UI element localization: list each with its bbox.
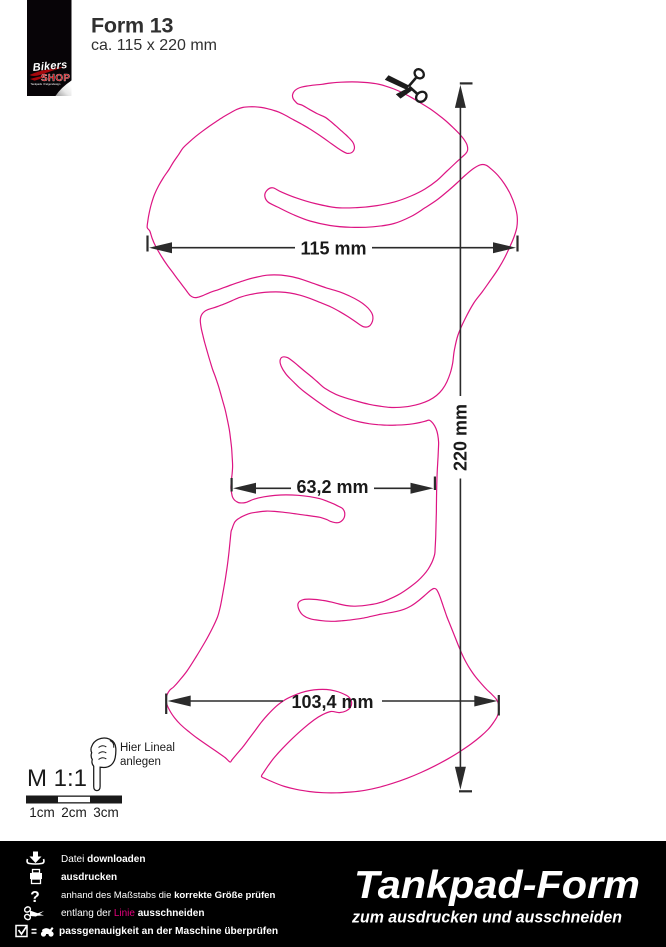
- svg-text:anhand des Maßstabs die korrek: anhand des Maßstabs die korrekte Größe p…: [61, 890, 276, 901]
- svg-text:zum ausdrucken und ausschneide: zum ausdrucken und ausschneiden: [351, 908, 622, 927]
- svg-text:63,2 mm: 63,2 mm: [296, 477, 368, 497]
- svg-text:?: ?: [30, 889, 39, 906]
- svg-text:3cm: 3cm: [93, 805, 119, 820]
- svg-text:Hier Lineal: Hier Lineal: [120, 742, 175, 754]
- svg-text:ca. 115 x 220 mm: ca. 115 x 220 mm: [91, 37, 217, 54]
- svg-text:2cm: 2cm: [61, 805, 87, 820]
- svg-text:ausdrucken: ausdrucken: [61, 872, 117, 883]
- svg-text:103,4 mm: 103,4 mm: [291, 692, 373, 712]
- svg-text:Tankpad-Form: Tankpad-Form: [354, 864, 640, 907]
- svg-text:M 1:1: M 1:1: [27, 765, 87, 792]
- svg-text:anlegen: anlegen: [120, 756, 161, 768]
- svg-text:1cm: 1cm: [29, 805, 55, 820]
- svg-text:220 mm: 220 mm: [451, 404, 471, 471]
- svg-text:entlang der Linie ausschneiden: entlang der Linie ausschneiden: [61, 908, 204, 919]
- svg-text:passgenauigkeit an der Maschin: passgenauigkeit an der Maschine überprüf…: [59, 926, 278, 937]
- svg-text:Datei downloaden: Datei downloaden: [61, 854, 145, 865]
- svg-text:Tankpads I Felgendesign: Tankpads I Felgendesign: [31, 82, 61, 86]
- svg-text:Form 13: Form 13: [91, 14, 173, 38]
- svg-text:115 mm: 115 mm: [300, 238, 366, 258]
